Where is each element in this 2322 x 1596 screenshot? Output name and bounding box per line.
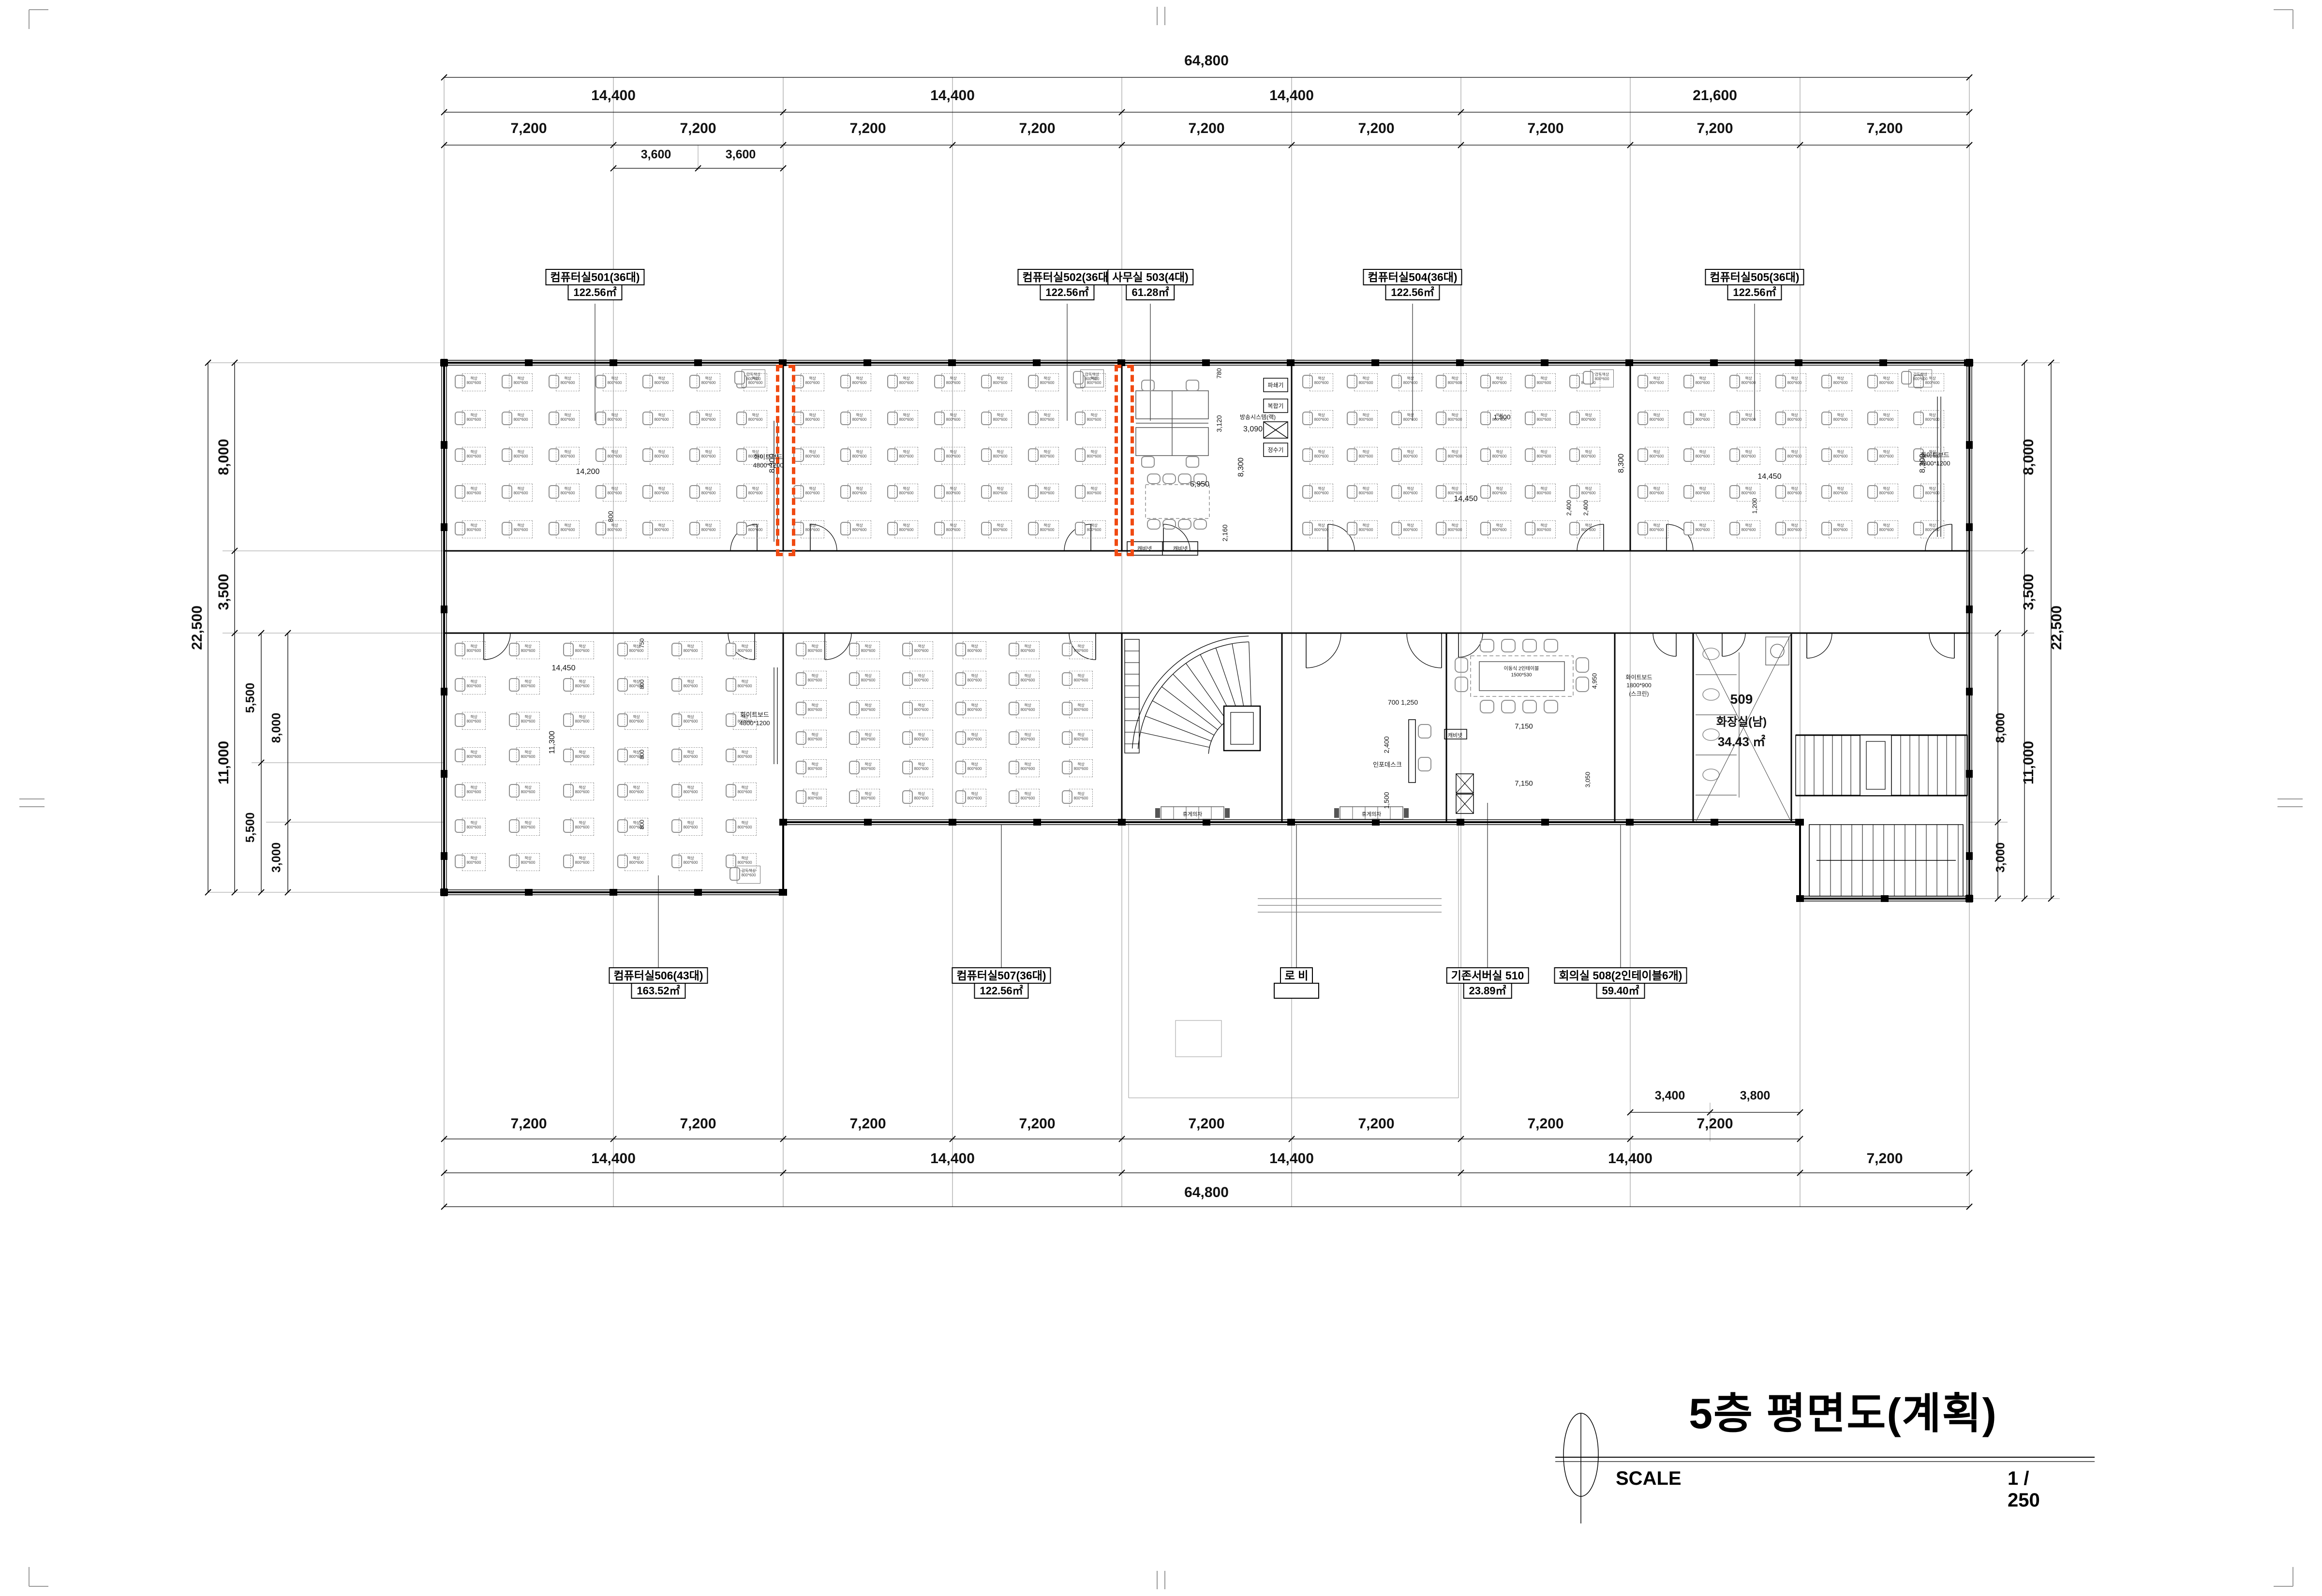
room-name: 컴퓨터실501(36대) [545,269,644,285]
annotation-text: 1,900 [1493,413,1510,421]
annotation-text: 파쇄기 [1267,381,1283,389]
annotation-text: 64,800 [1184,1184,1229,1201]
annotation-text: 복합기 [1267,402,1283,410]
annotation-text: 3,500 [216,574,232,610]
annotation-text: 4,950 [1591,673,1598,689]
annotation-text: 64,800 [1184,53,1229,69]
room-area: 59.40㎡ [1596,983,1645,999]
room-label: 회의실 508(2인테이블6개)59.40㎡ [1554,967,1687,999]
annotation-text: 22,500 [189,606,206,650]
annotation-text: 22,500 [2049,606,2065,650]
annotation-text: 11,300 [548,731,557,754]
annotation-text: 4800*1200 [740,720,770,727]
annotation-text: 7,200 [1358,120,1394,137]
room-name: 기존서버실 510 [1446,967,1529,984]
annotation-text: 14,400 [1608,1151,1652,1167]
room-label: 기존서버실 51023.89㎡ [1446,967,1529,999]
annotation-text: 800 [639,680,645,689]
room-label: 로 비 [1274,967,1319,999]
room-name: 회의실 508(2인테이블6개) [1554,967,1687,984]
annotation-text: 화이트보드 [1625,673,1652,681]
annotation-text: 1,200 [1751,498,1758,514]
annotation-text: 캐비넷 [1173,545,1188,552]
annotation-text: 3,600 [726,148,756,162]
room-area: 163.52㎡ [631,983,685,999]
room-name: 사무실 503(4대) [1107,269,1193,285]
annotation-text: 이동식 2인테이블 [1504,665,1539,672]
room-area: 23.89㎡ [1463,983,1512,999]
annotation-text: 3,090 [1243,425,1263,434]
annotation-text: 8,300 [1617,454,1626,473]
annotation-text: 7,200 [1527,120,1563,137]
annotation-text: 14,450 [552,664,576,673]
room-area: 122.56㎡ [567,284,622,300]
annotation-text: 14,450 [1454,495,1478,503]
annotation-text: 700 1,250 [1388,698,1418,706]
annotation-text: 7,200 [1358,1116,1394,1132]
room-area: 61.28㎡ [1126,284,1175,300]
annotation-text: 화이트보드 [740,710,769,719]
annotation-text: 5,500 [244,813,258,843]
annotation-text: 3,050 [1584,772,1592,788]
annotation-text: 14,400 [1269,88,1314,104]
info-desk [1409,720,1431,783]
annotation-text: 3,120 [1215,415,1223,432]
annotation-text: 7,200 [1019,120,1055,137]
annotation-text: 3,000 [1994,842,2008,873]
room-label: 컴퓨터실507(36대)122.56㎡ [952,967,1051,999]
annotation-text: 3,400 [1655,1089,1685,1103]
annotation-text: 7,200 [510,1116,547,1132]
annotation-text: 8,000 [2021,439,2037,475]
annotation-text: 3,500 [2021,574,2037,610]
highlighted-new-wall [1115,365,1134,556]
annotation-text: 14,400 [1269,1151,1314,1167]
annotation-text: 2,400 [1565,500,1573,516]
room-name: 컴퓨터실502(36대) [1017,269,1116,285]
annotation-text: 7,200 [1188,120,1224,137]
annotation-text: 7,200 [1866,1151,1903,1167]
annotation-text: 7,200 [849,1116,886,1132]
scale-label: SCALE [1616,1468,1682,1490]
annotation-text: 14,400 [591,88,636,104]
annotation-text: 3,600 [641,148,671,162]
annotation-text: 8,000 [1994,713,2008,743]
annotation-text: 7,200 [1188,1116,1224,1132]
annotation-text: 8,300 [1237,458,1246,477]
annotation-text: 509 [1730,692,1753,707]
room-area: 122.56㎡ [1727,284,1782,300]
annotation-text: 화이트보드 [754,452,783,461]
annotation-text: 휴게의자 [1362,810,1381,818]
annotation-text: 14,400 [930,88,975,104]
annotation-text: 1800*900 [1626,682,1651,689]
room-area: 122.56㎡ [1040,284,1094,300]
drawing-sheet: 5층 평면도(계획) SCALE 1 / 250 책상800*600책상800*… [0,0,2322,1596]
annotation-text: 8,000 [216,439,232,475]
annotation-text: 3,000 [270,842,284,873]
annotation-text: 캐비넷 [1137,545,1152,552]
sheet-registration-marks [19,7,2303,1589]
annotation-text: 7,200 [1697,1116,1733,1132]
annotation-text: (스크린) [1629,690,1649,698]
room-area: 122.56㎡ [974,983,1028,999]
annotation-text: 방송시스템(랙) [1240,413,1276,421]
annotation-text: 11,000 [2021,741,2037,784]
annotation-text: 2,160 [1221,524,1229,541]
annotation-text: 인포데스크 [1373,760,1402,769]
room-label: 컴퓨터실502(36대)122.56㎡ [1017,269,1116,300]
annotation-text: 7,200 [1527,1116,1563,1132]
annotation-text: 14,400 [930,1151,975,1167]
annotation-text: 14,200 [576,468,600,476]
room-label: 컴퓨터실504(36대)122.56㎡ [1363,269,1462,300]
scale-value: 1 / 250 [2008,1468,2040,1511]
annotation-text: 2,400 [1582,500,1590,516]
room-label: 컴퓨터실501(36대)122.56㎡ [545,269,644,300]
annotation-text: 정수기 [1267,446,1283,454]
annotation-text: 7,200 [849,120,886,137]
annotation-text: 7,200 [680,120,716,137]
annotation-text: 14,400 [591,1151,636,1167]
annotation-text: 7,200 [1697,120,1733,137]
room-name: 컴퓨터실506(43대) [609,967,708,984]
annotation-text: 7,150 [1515,723,1533,731]
annotation-text: 14,450 [1758,473,1782,481]
annotation-text: 800 [639,750,645,759]
annotation-text: 캐비넷 [1448,731,1462,739]
room-name: 컴퓨터실504(36대) [1363,269,1462,285]
annotation-text: 4800*1200 [1920,460,1950,467]
annotation-text: 34.43 ㎡ [1718,732,1765,750]
room-name: 컴퓨터실505(36대) [1705,269,1804,285]
annotation-text: 3,800 [1740,1089,1771,1103]
annotation-text: 750 [639,638,645,648]
annotation-text: 780 [1216,368,1223,379]
room-label: 컴퓨터실506(43대)163.52㎡ [609,967,708,999]
annotation-text: 1500*530 [1511,673,1532,678]
annotation-text: 화이트보드 [1920,450,1950,459]
room-label: 사무실 503(4대)61.28㎡ [1107,269,1193,300]
room-label: 컴퓨터실505(36대)122.56㎡ [1705,269,1804,300]
annotation-text: 800 [607,511,614,522]
room-name: 컴퓨터실507(36대) [952,967,1051,984]
annotation-text: 11,000 [216,741,232,784]
room-area: 122.56㎡ [1385,284,1440,300]
office-furniture [1127,380,1209,555]
annotation-text: 8,000 [270,713,284,743]
annotation-text: 5,500 [244,683,258,713]
annotation-text: 휴게의자 [1183,810,1202,818]
floor-plan-drawing [0,0,2322,1596]
room-name: 로 비 [1280,967,1313,984]
annotation-text: 7,150 [1515,780,1533,788]
room-area [1274,983,1319,999]
annotation-text: 4800*1200 [753,462,784,469]
annotation-text: 7,200 [510,120,547,137]
annotation-text: 800 [639,820,645,829]
annotation-text: 7,200 [1019,1116,1055,1132]
annotation-text: 7,200 [1866,120,1903,137]
annotation-text: 2,400 [1383,736,1390,753]
annotation-text: 6,950 [1190,480,1209,489]
annotation-text: 화장실(남) [1716,712,1767,729]
annotation-text: 1,500 [1383,792,1390,809]
annotation-text: 21,600 [1693,88,1737,104]
drawing-title: 5층 평면도(계획) [1611,1379,2075,1441]
annotation-text: 7,200 [680,1116,716,1132]
